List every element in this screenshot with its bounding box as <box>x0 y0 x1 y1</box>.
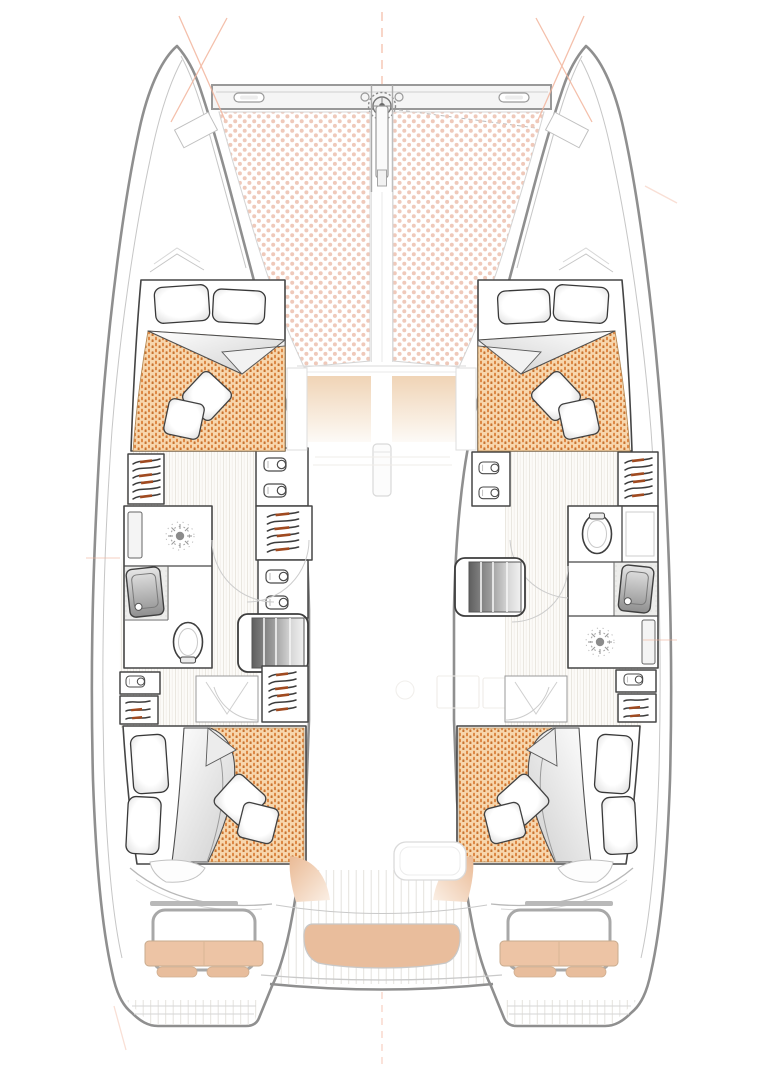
aft-platform-edge <box>270 984 493 990</box>
cockpit-bench-cushion <box>304 924 460 968</box>
faucet-icon <box>624 597 632 605</box>
bowsprit-icon <box>372 85 393 362</box>
aft-cabin-starboard <box>457 726 640 864</box>
faucet-icon <box>135 603 143 611</box>
cabinet-shelves <box>258 560 308 618</box>
mast-icon <box>373 444 391 496</box>
floorplan-canvas <box>0 0 763 1080</box>
cabinet-shelves <box>256 448 308 506</box>
wardrobe <box>128 454 164 504</box>
sink-icon <box>618 564 655 613</box>
sink-icon <box>126 566 165 617</box>
starboard-head <box>568 506 658 668</box>
cabinet-shelves <box>472 452 510 506</box>
port-head <box>124 506 212 668</box>
shower-shelf <box>642 620 655 664</box>
locker-hangers <box>120 696 158 724</box>
wardrobe <box>618 452 658 506</box>
locker <box>616 670 656 692</box>
wardrobe <box>262 666 308 722</box>
foredeck <box>295 366 468 496</box>
wardrobe <box>256 506 312 560</box>
port-hull-interior <box>120 448 312 728</box>
locker <box>120 672 160 694</box>
locker-hangers <box>618 694 656 722</box>
shower-bench <box>128 512 142 558</box>
